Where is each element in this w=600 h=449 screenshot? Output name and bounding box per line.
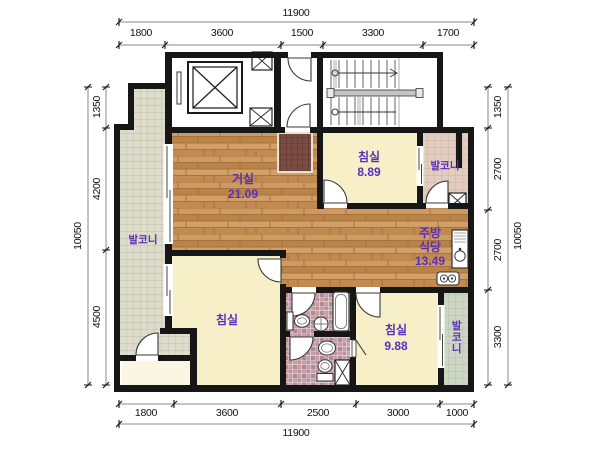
- label-living-room-area: 21.09: [228, 188, 258, 200]
- elevator-rail: [177, 72, 181, 104]
- dim-left-seg-2: 4200: [92, 178, 103, 200]
- dim-bottom-seg-5: 1000: [446, 408, 468, 419]
- dim-right-seg-4: 3300: [493, 326, 504, 348]
- sink-tap: [459, 248, 462, 251]
- dim-top-total: 11900: [283, 8, 310, 19]
- label-living-room-name: 거실: [232, 173, 254, 185]
- dim-left-seg-1: 1350: [92, 96, 103, 118]
- label-balcony-top-right: 발코니: [431, 161, 460, 172]
- label-bedroom-top-right-name: 침실: [358, 151, 380, 163]
- label-bedroom-top-right-area: 8.89: [357, 166, 380, 178]
- label-balcony-bottom-right: 발코니: [451, 320, 462, 355]
- label-kitchen-line1: 주방: [419, 227, 441, 239]
- dim-right-seg-1: 1350: [493, 96, 504, 118]
- dim-left-total: 10050: [73, 222, 84, 250]
- label-kitchen-area: 13.49: [415, 255, 445, 267]
- label-bedroom-bottom-right-area: 9.88: [384, 340, 407, 352]
- dim-left-seg-3: 4500: [92, 306, 103, 328]
- dim-bottom-seg-2: 3600: [216, 408, 238, 419]
- dim-top-seg-1: 1800: [130, 28, 152, 39]
- sink-bowl: [455, 251, 465, 261]
- dim-right-total: 10050: [513, 222, 524, 250]
- dim-right-seg-2: 2700: [493, 158, 504, 180]
- dim-right-seg-3: 2700: [493, 239, 504, 261]
- closet-door: [352, 340, 356, 357]
- label-balcony-left: 발코니: [129, 235, 158, 246]
- dim-top-seg-3: 1500: [291, 28, 313, 39]
- toilet-top: [295, 315, 310, 327]
- toilet-tank-top: [287, 312, 293, 330]
- dim-bottom-seg-1: 1800: [135, 408, 157, 419]
- dim-bottom-seg-4: 3000: [387, 408, 409, 419]
- dim-bottom-total: 11900: [283, 428, 310, 439]
- basin-bottom: [319, 341, 336, 355]
- label-bedroom-bottom-right-name: 침실: [385, 324, 407, 336]
- label-bedroom-left: 침실: [216, 314, 238, 326]
- dim-top-seg-5: 1700: [437, 28, 459, 39]
- toilet-tank-bottom: [317, 374, 333, 382]
- dim-top-seg-4: 3300: [362, 28, 384, 39]
- dim-bottom-seg-3: 2500: [307, 408, 329, 419]
- entry-tile-floor: [278, 133, 312, 172]
- dim-top-seg-2: 3600: [211, 28, 233, 39]
- floor-plan: 11900 1800 3600 1500 3300 1700 1800 3600…: [0, 0, 600, 449]
- floor-plan-drawing: [0, 0, 600, 449]
- toilet-bottom: [318, 360, 332, 372]
- utility-room-floor: [122, 361, 190, 385]
- label-kitchen-line2: 식당: [419, 241, 441, 253]
